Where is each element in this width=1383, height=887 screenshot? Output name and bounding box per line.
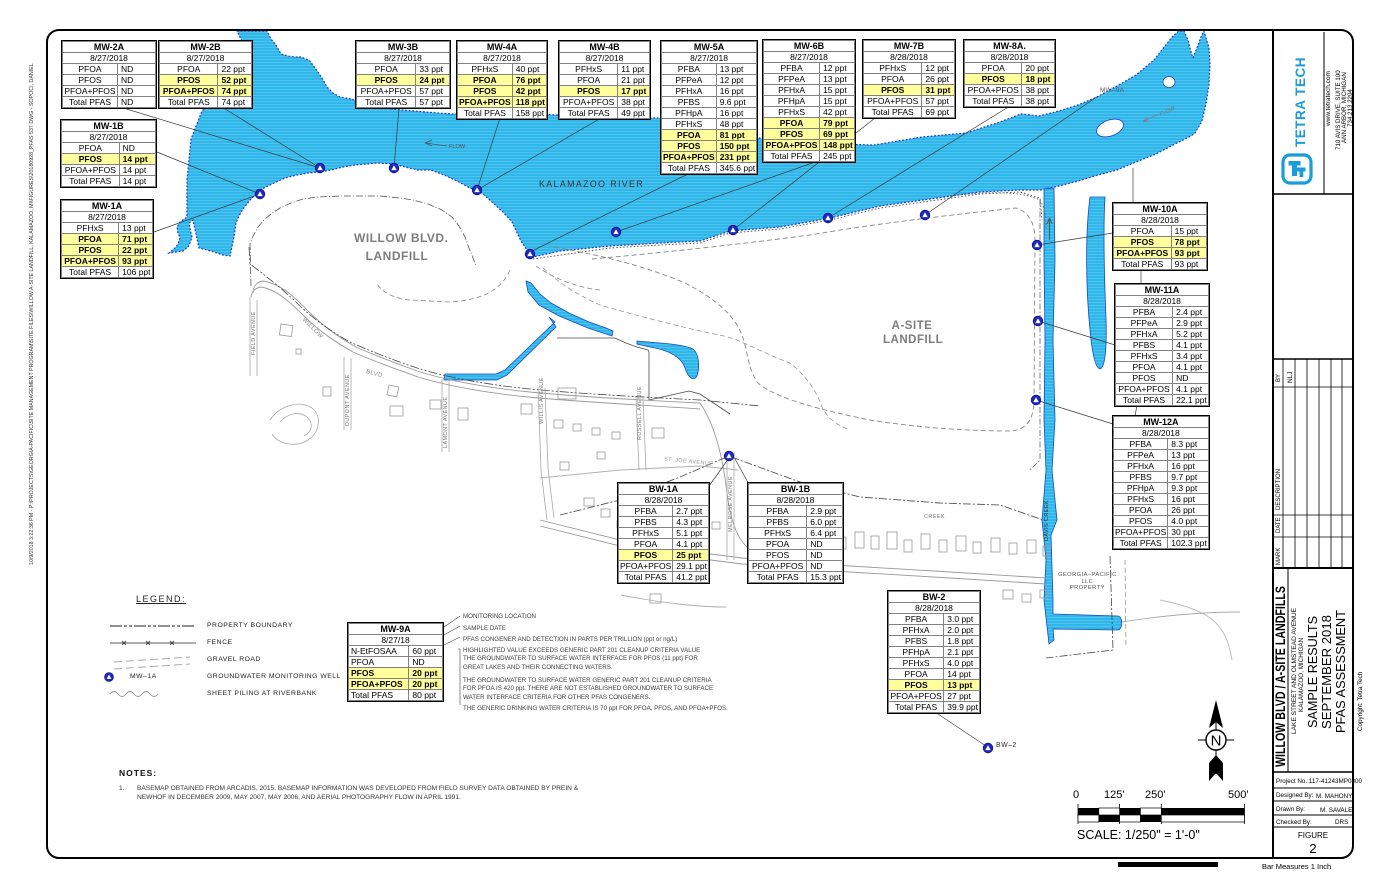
svg-text:LAKE STREET AND OLMSTEAD AVENU: LAKE STREET AND OLMSTEAD AVENUE xyxy=(1291,608,1298,734)
svg-text:FIGURE: FIGURE xyxy=(1298,831,1328,840)
svg-text:M. MAHONY: M. MAHONY xyxy=(1316,793,1353,800)
svg-text:DRS: DRS xyxy=(1335,819,1348,826)
svg-text:Bar Measures 1 Inch: Bar Measures 1 Inch xyxy=(1262,862,1331,871)
svg-text:PFAS ASSESSMENT: PFAS ASSESSMENT xyxy=(1333,610,1348,733)
svg-text:Drawn By:: Drawn By: xyxy=(1276,806,1305,813)
svg-text:www.tetratech.com: www.tetratech.com xyxy=(1325,71,1332,127)
svg-text:SAMPLE RESULTS: SAMPLE RESULTS xyxy=(1305,616,1320,728)
svg-text:KALAMAZOO, MICHIGAN: KALAMAZOO, MICHIGAN xyxy=(1298,637,1305,712)
svg-text:734.213.2204: 734.213.2204 xyxy=(1347,89,1354,127)
svg-text:DATE: DATE xyxy=(1276,517,1282,533)
svg-text:Checked By:: Checked By: xyxy=(1276,819,1312,826)
svg-text:2: 2 xyxy=(1309,841,1316,856)
svg-text:Designed By:: Designed By: xyxy=(1276,792,1314,799)
svg-text:BY: BY xyxy=(1276,374,1282,382)
svg-text:10/9/2018 3:22:36 PM - P:\PROJ: 10/9/2018 3:22:36 PM - P:\PROJECTS\GEORG… xyxy=(29,63,35,565)
svg-text:NLJ: NLJ xyxy=(1287,371,1294,383)
svg-text:SEPTEMBER 2018: SEPTEMBER 2018 xyxy=(1319,615,1334,729)
svg-text:MARK: MARK xyxy=(1276,548,1282,565)
svg-text:WILLOW BLVD / A-SITE LANDFILLS: WILLOW BLVD / A-SITE LANDFILLS xyxy=(1273,586,1288,767)
svg-text:M. SAVALE: M. SAVALE xyxy=(1320,807,1352,814)
svg-text:Project No.:117-41243MP0800: Project No.:117-41243MP0800 xyxy=(1276,778,1362,785)
svg-text:DESCRIPTION: DESCRIPTION xyxy=(1276,469,1282,510)
svg-text:TETRA TECH: TETRA TECH xyxy=(1293,57,1308,147)
svg-text:Copyright: Tetra Tech: Copyright: Tetra Tech xyxy=(1357,671,1364,731)
